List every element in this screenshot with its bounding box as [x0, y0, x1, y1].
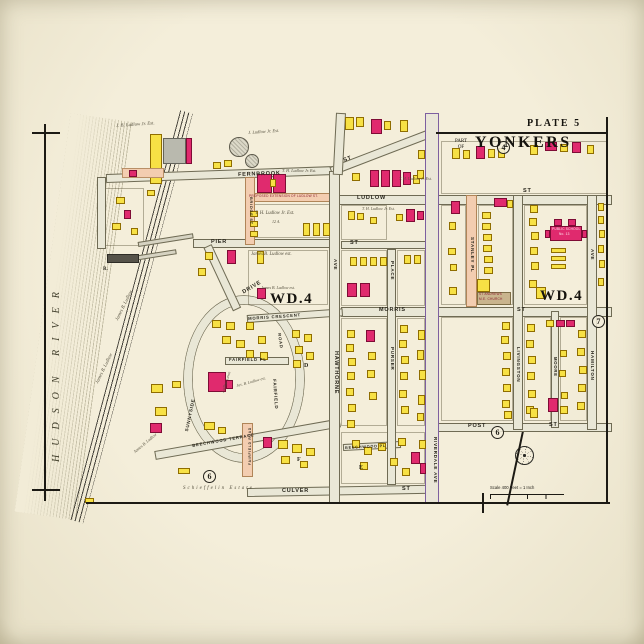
plate-border-line: [482, 493, 484, 513]
street-hawthorne-ave: [329, 171, 340, 503]
building: [417, 211, 424, 220]
building: [526, 340, 534, 348]
building: [347, 283, 357, 297]
scale-bar: [490, 494, 564, 499]
building: [551, 256, 566, 261]
map-label: 12 A.: [272, 220, 280, 224]
building: [348, 404, 356, 412]
scale-label: Scale 400 Feet = 1 Inch: [490, 485, 534, 490]
building: [483, 234, 492, 241]
building: [404, 255, 411, 264]
map-label: ST: [517, 308, 526, 314]
building: [204, 422, 215, 430]
building: [577, 402, 585, 410]
building: [418, 330, 425, 340]
building: [360, 283, 370, 297]
building: [371, 119, 382, 134]
building: [587, 145, 594, 154]
map-label: PUBLIC SCHOOL: [552, 228, 580, 231]
building: [348, 358, 356, 366]
building: [270, 179, 276, 187]
block-number-badge: 6: [491, 426, 504, 439]
building: [578, 384, 586, 392]
building: [503, 384, 511, 392]
gas-tank: [229, 137, 249, 157]
building: [599, 230, 605, 238]
map-label: Schieffelin Estate: [183, 486, 254, 491]
map-label: LIVINGSTON: [516, 347, 521, 382]
building: [357, 213, 364, 220]
building: [551, 248, 566, 253]
map-label: LUDLOW: [357, 196, 386, 202]
street-hamilton-ave: [587, 195, 597, 430]
map-label: FAIRFIELD ROAD: [249, 427, 252, 465]
building: [295, 346, 303, 354]
building: [528, 356, 536, 364]
building: [449, 222, 456, 230]
building: [501, 336, 509, 344]
building: [579, 366, 587, 374]
map-label: PROPOSED EXTENSION OF LUDLOW ST.: [249, 195, 318, 198]
building: [236, 340, 245, 348]
map-label: PLACE: [390, 261, 395, 280]
building: [263, 437, 272, 448]
building: [561, 392, 568, 399]
map-label: WD.4: [270, 292, 313, 307]
map-label: ST ANDREWS: [479, 293, 502, 296]
building: [347, 330, 355, 338]
building: [572, 142, 581, 153]
building: [178, 468, 190, 474]
building: [484, 267, 493, 274]
building: [258, 336, 266, 344]
building: [218, 427, 226, 434]
building: [531, 232, 539, 240]
building: [451, 201, 460, 214]
building: [347, 420, 355, 428]
map-label: BRIDGE ST: [248, 197, 252, 225]
building: [304, 334, 312, 342]
plate-border-line: [606, 117, 608, 504]
street-post-st: [436, 423, 612, 432]
building: [172, 381, 181, 388]
building: [504, 411, 512, 419]
gas-tank: [245, 154, 259, 168]
building: [502, 400, 510, 408]
plate-number-label: PLATE 5: [527, 118, 581, 129]
map-label: T. H. Ludlow Jr. Est.: [399, 177, 432, 181]
map-label: No. 13: [559, 233, 570, 236]
building: [578, 330, 586, 338]
map-label: F: [297, 457, 301, 463]
building: [530, 205, 538, 213]
map-label: James B. Ludlow est.: [251, 253, 292, 258]
building: [293, 360, 301, 368]
plate-border-line: [32, 489, 60, 491]
building: [556, 320, 565, 327]
hudson-river-label: HUDSON RIVER: [51, 283, 62, 462]
building: [227, 250, 236, 264]
building: [347, 372, 355, 380]
building: [222, 336, 231, 344]
building: [345, 117, 354, 130]
building: [107, 254, 139, 263]
building: [598, 278, 604, 286]
plate-border-line: [32, 132, 60, 134]
building: [417, 350, 424, 360]
building: [527, 372, 535, 380]
building: [346, 344, 354, 352]
map-label: FAIRFIELD: [272, 379, 279, 410]
building: [212, 320, 221, 328]
building: [370, 257, 377, 266]
map-label: James B. Ludlow est.: [261, 286, 295, 290]
building: [381, 170, 390, 187]
building: [503, 352, 511, 360]
building: [528, 390, 536, 398]
building: [568, 219, 576, 226]
building: [560, 406, 568, 414]
building: [360, 257, 367, 266]
building: [112, 223, 121, 230]
map-label: MOORE: [553, 357, 557, 377]
building: [527, 324, 535, 332]
building: [551, 264, 566, 269]
building: [306, 352, 314, 360]
building: [370, 217, 377, 224]
building: [529, 218, 537, 226]
building: [246, 322, 254, 330]
map-layer: HUDSON RIVER Scale 400 Feet = 1 Inch FER…: [0, 0, 644, 644]
building: [151, 384, 163, 393]
building: [303, 223, 310, 236]
building: [599, 260, 605, 268]
building: [483, 245, 492, 252]
building: [226, 322, 235, 330]
building: [507, 200, 513, 208]
building: [482, 212, 491, 219]
map-label: POST: [468, 424, 486, 430]
building: [463, 150, 470, 159]
building: [150, 423, 162, 433]
building: [380, 257, 387, 266]
building: [417, 413, 424, 421]
building: [477, 279, 490, 292]
building: [366, 330, 375, 342]
building: [401, 356, 409, 364]
building: [116, 197, 125, 204]
map-label: D: [304, 363, 308, 369]
building: [278, 440, 288, 449]
building: [396, 214, 403, 221]
building: [224, 160, 232, 167]
building: [368, 352, 376, 360]
building: [124, 210, 131, 219]
map-label: WD.4: [540, 289, 583, 304]
building: [402, 468, 410, 476]
building: [198, 268, 206, 276]
plate-border-line: [44, 124, 46, 501]
building: [419, 440, 426, 449]
poster-background: HUDSON RIVER Scale 400 Feet = 1 Inch FER…: [0, 0, 644, 644]
building: [548, 398, 558, 412]
building: [545, 230, 550, 238]
map-label: AVE: [590, 249, 595, 260]
plate-border-line: [86, 502, 610, 504]
block-number-badge: 7: [592, 315, 605, 328]
building: [250, 231, 258, 237]
map-label: R.: [103, 267, 108, 272]
map-label: FAIRFIELD PL: [229, 358, 267, 362]
building: [398, 438, 406, 446]
building: [450, 264, 457, 271]
building: [502, 368, 510, 376]
map-label: RIVERDALE AVE: [433, 437, 438, 483]
map-label: ROAD: [277, 333, 283, 349]
building: [554, 219, 562, 226]
building: [205, 252, 213, 260]
building: [147, 190, 155, 196]
building: [369, 392, 377, 400]
building: [582, 230, 587, 238]
building: [406, 209, 415, 222]
block-number-badge: 6: [203, 470, 216, 483]
map-label: J. Ludlow Jr. Est.: [248, 129, 280, 136]
building: [401, 406, 409, 414]
building: [384, 121, 391, 130]
building: [419, 370, 426, 380]
building: [367, 370, 375, 378]
building: [400, 372, 408, 380]
building: [155, 407, 167, 416]
building: [449, 287, 457, 295]
building: [129, 170, 137, 177]
map-label: E: [359, 465, 363, 471]
building: [484, 256, 493, 263]
map-label: T. H. Ludlow Jr. Est.: [362, 207, 395, 211]
building: [131, 228, 138, 235]
map-title: YONKERS: [475, 134, 572, 152]
building: [213, 162, 221, 169]
building: [350, 257, 357, 266]
building: [346, 388, 354, 396]
building: [420, 463, 426, 474]
building: [186, 138, 192, 164]
part-of-line2: OF: [455, 145, 467, 151]
building: [400, 325, 408, 333]
map-label: ST: [549, 423, 558, 429]
building: [163, 138, 186, 164]
part-of-line1: PART: [455, 139, 467, 145]
building: [577, 348, 585, 356]
building: [348, 211, 355, 220]
map-label: AVE: [333, 259, 338, 270]
building: [530, 408, 538, 418]
building: [482, 223, 491, 230]
map-label: PURSER: [390, 347, 395, 371]
building: [399, 390, 407, 398]
building: [502, 322, 510, 330]
building: [559, 370, 566, 377]
building: [598, 203, 604, 211]
building: [411, 452, 420, 464]
building: [352, 173, 360, 181]
building: [530, 247, 538, 255]
building: [306, 448, 315, 456]
building: [566, 320, 575, 327]
map-label: PIER: [211, 240, 227, 246]
building: [323, 223, 330, 236]
building: [414, 255, 421, 264]
building: [292, 330, 300, 338]
map-label: CULVER: [282, 489, 309, 495]
building: [448, 248, 456, 255]
building: [356, 117, 364, 127]
building: [418, 150, 425, 159]
map-label: HAMILTON: [590, 351, 595, 381]
building: [390, 458, 398, 466]
map-label: M.E. CHURCH: [479, 298, 502, 301]
map-label: ST: [350, 241, 359, 247]
building: [560, 350, 567, 357]
map-label: HAWTHORNE: [333, 351, 339, 394]
building: [370, 170, 379, 187]
building: [292, 444, 302, 453]
map-label: STANLEY PL: [470, 237, 475, 273]
building: [300, 461, 308, 468]
map-label: MORRIS: [379, 308, 406, 314]
building: [418, 395, 425, 405]
map-label: ST: [523, 189, 532, 195]
part-of-label: PART OF: [455, 139, 467, 150]
building: [281, 456, 290, 464]
building: [546, 320, 554, 327]
building: [531, 262, 539, 270]
building: [494, 198, 507, 207]
building: [399, 340, 407, 348]
map-label: ST: [402, 487, 411, 493]
building: [313, 223, 320, 236]
street-riverfront-street: [97, 177, 106, 249]
building: [598, 216, 604, 224]
building: [400, 120, 408, 132]
map-label: T. H. Ludlow Jr. Est.: [282, 169, 316, 173]
map-label: J. B. Ludlow Jr. Est.: [116, 122, 155, 129]
building: [598, 245, 604, 253]
map-label: T. H. Ludlow Jr. Est.: [255, 212, 294, 217]
